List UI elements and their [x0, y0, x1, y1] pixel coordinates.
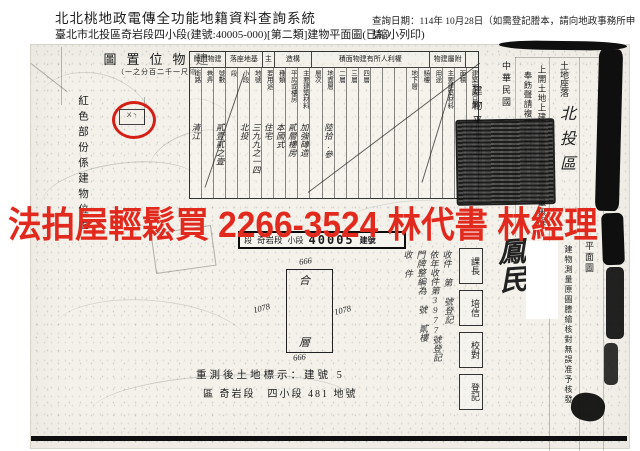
scan-edge-bottom [31, 436, 627, 441]
table-column: 種類本國式 [274, 68, 286, 198]
dim-right: 1078 [333, 303, 352, 317]
table-column [371, 68, 383, 198]
table-column-value: 本國式 [274, 120, 286, 198]
plan-label-2: 平面圖 [583, 241, 596, 291]
table-column-header: 三層 [349, 68, 356, 120]
dim-top: 666 [298, 255, 312, 267]
stamp-box: 培信 [459, 290, 483, 326]
system-title: 北北桃地政電傳全功能地籍資料查詢系統 [55, 7, 316, 27]
table-column-header: 二層 [337, 68, 344, 120]
table-column-value: 住宅 [262, 120, 274, 198]
plan-inner-top: 合 [299, 272, 310, 288]
era-label: 中華民國 [500, 61, 513, 121]
scan-blob [569, 390, 607, 423]
table-column-value: 清江 [190, 120, 202, 198]
table-column-value: 加強磚造 [298, 120, 310, 198]
table-group-label: 權利人所有建物面積 [312, 52, 431, 67]
table-column: 地下層 [407, 68, 419, 198]
dim-left: 1078 [252, 301, 271, 315]
stamp-box: 登記 [459, 374, 483, 410]
table-column: 三層 [347, 68, 359, 198]
scan-band-right [601, 213, 625, 266]
table-column: 要用途住宅 [262, 68, 274, 198]
table-column-header: 號數 [216, 68, 223, 120]
table-column: 平房或樓房貳層樓房 [286, 68, 298, 198]
table-column-header: 平房或樓房 [288, 68, 295, 120]
table-column: 騎樓 [419, 68, 431, 198]
table-column: 二層 [335, 68, 347, 198]
table-column: 四層 [359, 68, 371, 198]
redaction-box [526, 241, 558, 319]
plan-inner-bottom: 層 [299, 334, 310, 350]
map-line [61, 47, 62, 105]
table-column: 號數貳壹貳之壹 [214, 68, 226, 198]
building-footprint: 合 層 [286, 269, 333, 353]
table-column-header: 街路 [192, 68, 199, 120]
row-rule [515, 57, 605, 58]
table-column-value: 北投 [238, 120, 250, 198]
official-seal-stamp [455, 118, 555, 206]
table-column-value: 陸拾.參 [323, 120, 335, 198]
table-column: 主要建築材料加強磚造 [298, 68, 310, 198]
table-column-value: 貳層樓房 [286, 120, 298, 198]
table-column-header: 騎樓 [421, 68, 428, 120]
table-column: 街路清江 [190, 68, 202, 198]
table-column [395, 68, 407, 198]
scan-band-right [595, 49, 623, 212]
table-group-header-row: 建物門牌基地座落主構造權利人所有建物面積附屬建物 [190, 52, 478, 68]
stamp-box: 課長 [459, 248, 483, 284]
table-group-label: 建物門牌 [190, 52, 226, 67]
scan-band-right [604, 343, 618, 385]
advertising-watermark: 法拍屋輕鬆買 2266-3524 林代書 林經理 [8, 196, 598, 248]
land-location-label: 土地座落 [558, 61, 571, 103]
table-column-header: 地面層 [325, 68, 332, 120]
print-preview-page: 北北桃地政電傳全功能地籍資料查詢系統 查詢日期：114年 10月28日（如需登記… [0, 0, 640, 451]
table-column-header: 四層 [361, 68, 368, 120]
document-subtitle: 臺北市北投區奇岩段四小段(建號:40005-000)[第二類]建物平面圖(已縮小… [55, 26, 425, 42]
table-column-header: 巷弄 [204, 68, 211, 120]
table-group-label: 附屬建物 [430, 52, 466, 67]
dim-bottom: 666 [293, 351, 307, 362]
red-circle-annotation [112, 101, 156, 139]
building-register-table: 建物門牌基地座落主構造權利人所有建物面積附屬建物 街路清江巷弄號數貳壹貳之壹段小… [189, 51, 479, 199]
table-column-header: 地號 [252, 68, 259, 120]
table-column: 小段北投 [238, 68, 250, 198]
table-column-header: 層次 [313, 68, 320, 120]
table-column-header: 種類 [276, 68, 283, 120]
table-column: 地號三九九之一四 [250, 68, 262, 198]
table-column-header: 主要建築材料 [301, 68, 308, 120]
resurvey-note-line2: 區 奇岩段 四小段 481 地號 [203, 385, 358, 400]
table-column-value: 三九九之一四 [250, 120, 262, 198]
verification-note: 建物測量原圖謄繪核對無誤准予核發 [563, 245, 574, 451]
table-group-label: 基地座落 [226, 52, 262, 67]
stamp-box: 校對 [459, 332, 483, 368]
table-group-label: 構造 [275, 52, 311, 67]
table-column: 層次 [310, 68, 322, 198]
scan-band-right [606, 267, 624, 339]
table-columns-row: 街路清江巷弄號數貳壹貳之壹段小段北投地號三九九之一四要用途住宅種類本國式平房或樓… [190, 68, 478, 198]
table-group-label: 主 [263, 52, 276, 67]
table-column: 段 [226, 68, 238, 198]
table-column-header: 要用途 [264, 68, 271, 120]
column-rule [579, 57, 580, 451]
resurvey-note-line1: 重測後土地標示：建號 5 [196, 367, 345, 382]
